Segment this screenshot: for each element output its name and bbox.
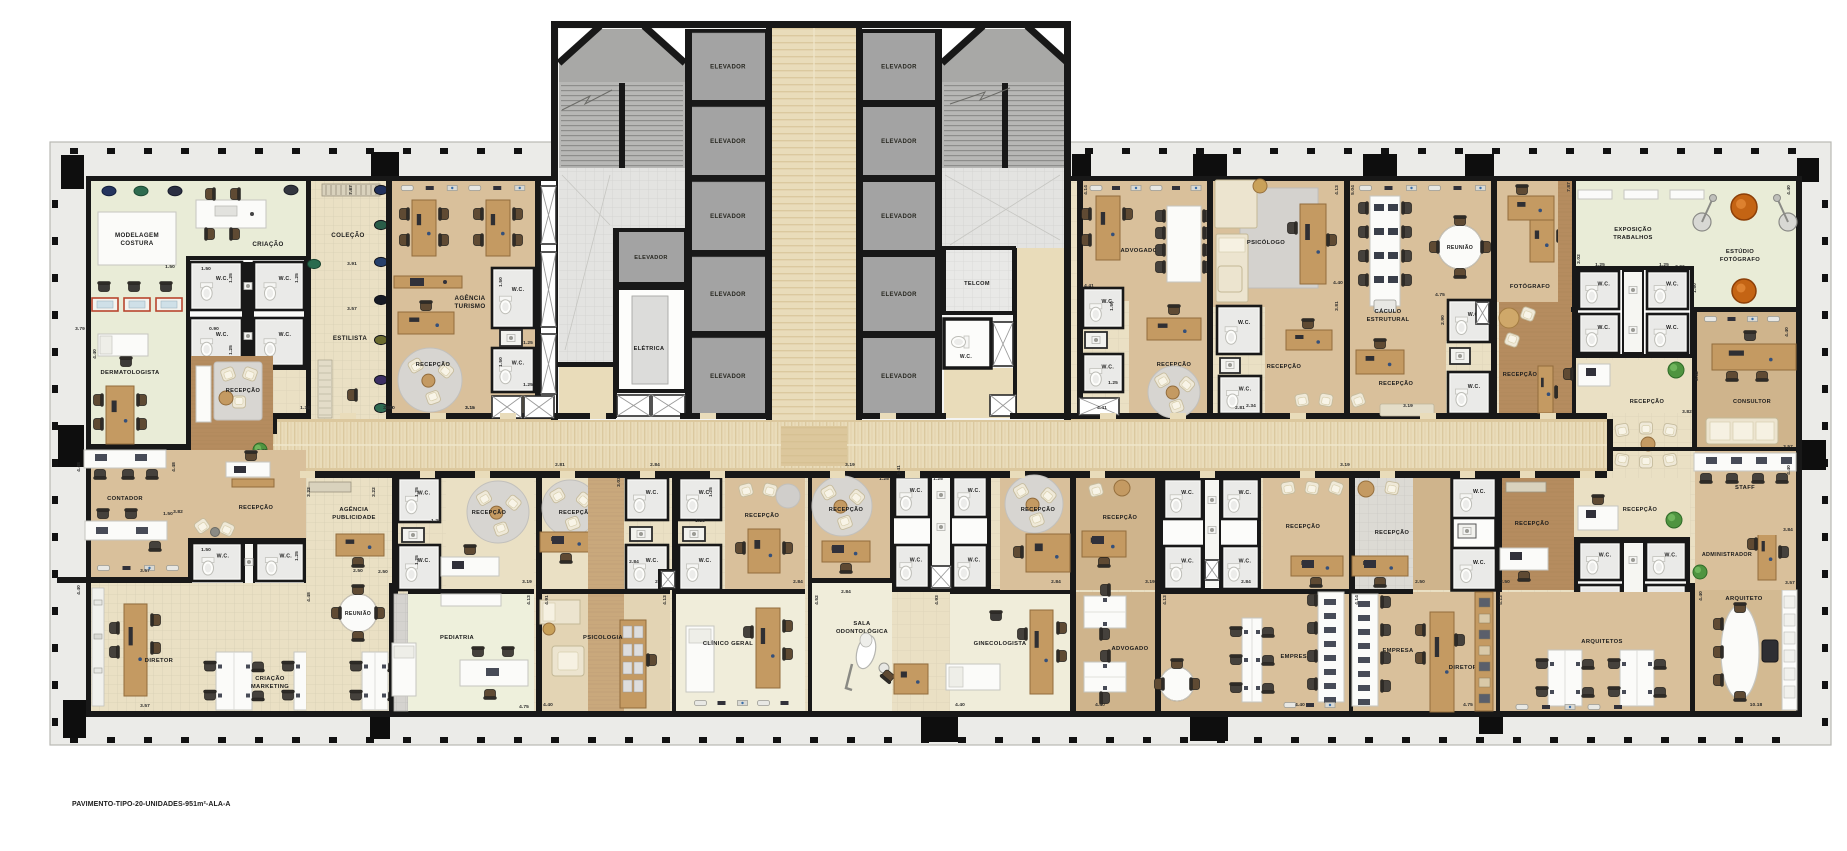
svg-text:1.25: 1.25 — [414, 487, 420, 497]
svg-text:3.19: 3.19 — [1403, 403, 1413, 409]
svg-text:3.57: 3.57 — [140, 568, 150, 574]
svg-text:2.84: 2.84 — [1241, 579, 1251, 585]
svg-text:4.40: 4.40 — [76, 585, 82, 595]
svg-text:2.84: 2.84 — [841, 589, 851, 595]
svg-text:RECEPÇÃO: RECEPÇÃO — [745, 512, 780, 519]
svg-text:4.93: 4.93 — [934, 595, 940, 605]
svg-text:W.C.: W.C. — [968, 557, 981, 563]
svg-text:W.C.: W.C. — [646, 558, 659, 564]
svg-text:2.50: 2.50 — [353, 568, 363, 574]
svg-text:2.50: 2.50 — [378, 569, 388, 575]
svg-text:W.C.: W.C. — [1239, 490, 1252, 496]
svg-text:3.22: 3.22 — [371, 487, 377, 497]
svg-text:1.50: 1.50 — [201, 547, 211, 553]
svg-text:1.50: 1.50 — [201, 266, 211, 272]
svg-text:3.82: 3.82 — [173, 509, 183, 515]
svg-text:2.50: 2.50 — [385, 405, 395, 411]
svg-text:4.14: 4.14 — [1083, 185, 1089, 195]
svg-text:4.13: 4.13 — [662, 595, 668, 605]
svg-text:CONTADOR: CONTADOR — [107, 496, 143, 502]
svg-text:4.40: 4.40 — [1786, 185, 1792, 195]
svg-text:3.22: 3.22 — [306, 487, 312, 497]
svg-text:W.C.: W.C. — [1473, 560, 1486, 566]
svg-text:3.91: 3.91 — [347, 261, 357, 267]
svg-text:RECEPÇÃO: RECEPÇÃO — [472, 509, 507, 516]
svg-text:MARKETING: MARKETING — [251, 684, 289, 690]
svg-text:4.40: 4.40 — [1095, 702, 1105, 708]
svg-text:AGÊNCIA: AGÊNCIA — [339, 505, 369, 513]
svg-text:3.19: 3.19 — [845, 462, 855, 468]
svg-text:W.C.: W.C. — [960, 354, 972, 360]
svg-text:ARQUITETOS: ARQUITETOS — [1581, 639, 1622, 645]
svg-text:W.C.: W.C. — [1181, 558, 1194, 564]
svg-text:1.25: 1.25 — [523, 382, 533, 388]
svg-text:4.13: 4.13 — [1334, 185, 1340, 195]
svg-text:2.81: 2.81 — [555, 462, 565, 468]
svg-text:ELEVADOR: ELEVADOR — [881, 139, 917, 145]
svg-text:RECEPÇÃO: RECEPÇÃO — [829, 506, 864, 513]
svg-text:MODELAGEM: MODELAGEM — [115, 232, 159, 239]
svg-text:ELEVADOR: ELEVADOR — [710, 139, 746, 145]
svg-text:4.40: 4.40 — [1333, 280, 1343, 286]
svg-text:ESTRUTURAL: ESTRUTURAL — [1367, 317, 1410, 323]
svg-text:1.25: 1.25 — [879, 476, 889, 482]
svg-text:DERMATOLOGISTA: DERMATOLOGISTA — [100, 370, 159, 376]
svg-text:10.18: 10.18 — [1750, 702, 1763, 708]
svg-text:W.C.: W.C. — [1597, 325, 1610, 331]
svg-text:4.48: 4.48 — [306, 592, 312, 602]
svg-text:1.25: 1.25 — [294, 551, 300, 561]
svg-text:ADVOGADO: ADVOGADO — [1112, 646, 1149, 652]
svg-text:RECEPÇÃO: RECEPÇÃO — [1379, 380, 1414, 387]
svg-text:CÁCULO: CÁCULO — [1375, 308, 1402, 315]
svg-text:RECEPÇÃO: RECEPÇÃO — [1503, 371, 1538, 378]
svg-text:1.25: 1.25 — [523, 340, 533, 346]
svg-text:ELEVADOR: ELEVADOR — [634, 255, 667, 261]
svg-text:W.C.: W.C. — [279, 332, 292, 338]
svg-text:2.50: 2.50 — [1500, 579, 1510, 585]
svg-text:1.25: 1.25 — [1108, 380, 1118, 386]
svg-text:SALA: SALA — [853, 621, 871, 627]
svg-text:4.52: 4.52 — [814, 595, 820, 605]
svg-text:1.25: 1.25 — [1659, 262, 1669, 268]
svg-text:COSTURA: COSTURA — [120, 240, 153, 247]
svg-text:4.48: 4.48 — [76, 462, 82, 472]
svg-text:3.82: 3.82 — [1682, 409, 1692, 415]
svg-text:TURISMO: TURISMO — [455, 303, 486, 310]
svg-text:W.C.: W.C. — [1597, 281, 1610, 287]
svg-text:W.C.: W.C. — [1468, 384, 1481, 390]
svg-text:COLEÇÃO: COLEÇÃO — [331, 232, 364, 239]
svg-text:4.13: 4.13 — [1162, 595, 1168, 605]
svg-text:3.84: 3.84 — [1783, 527, 1793, 533]
svg-text:TRABALHOS: TRABALHOS — [1613, 235, 1653, 241]
svg-text:5.04: 5.04 — [1350, 185, 1356, 195]
svg-text:W.C.: W.C. — [910, 488, 923, 494]
svg-text:ELEVADOR: ELEVADOR — [881, 374, 917, 380]
svg-text:4.48: 4.48 — [171, 462, 177, 472]
svg-text:RECEPÇÃO: RECEPÇÃO — [416, 361, 451, 368]
svg-text:RECEPÇÃO: RECEPÇÃO — [1375, 529, 1410, 536]
svg-text:CLÍNICO GERAL: CLÍNICO GERAL — [703, 639, 753, 647]
svg-text:3.81: 3.81 — [1334, 301, 1340, 311]
svg-text:W.C.: W.C. — [910, 557, 923, 563]
svg-text:W.C.: W.C. — [1664, 552, 1677, 558]
svg-text:STAFF: STAFF — [1735, 485, 1755, 491]
svg-text:1.50: 1.50 — [498, 357, 504, 367]
svg-text:ADMINISTRADOR: ADMINISTRADOR — [1702, 552, 1752, 558]
svg-text:ADVOGADO: ADVOGADO — [1121, 248, 1158, 254]
svg-text:1.50: 1.50 — [165, 264, 175, 270]
svg-text:4.91: 4.91 — [544, 595, 550, 605]
svg-text:RECEPÇÃO: RECEPÇÃO — [1103, 514, 1138, 521]
svg-text:DIRETOR: DIRETOR — [145, 658, 174, 664]
svg-text:ELEVADOR: ELEVADOR — [881, 65, 917, 71]
svg-text:4.41: 4.41 — [1084, 283, 1094, 289]
svg-text:2.84: 2.84 — [793, 579, 803, 585]
svg-text:W.C.: W.C. — [1239, 558, 1252, 564]
svg-text:4.40: 4.40 — [1786, 465, 1792, 475]
svg-text:3.57: 3.57 — [140, 703, 150, 709]
svg-text:GINECOLOGISTA: GINECOLOGISTA — [974, 641, 1027, 647]
svg-text:1.50: 1.50 — [498, 277, 504, 287]
svg-text:W.C.: W.C. — [1473, 489, 1486, 495]
svg-text:4.13: 4.13 — [1498, 595, 1504, 605]
svg-text:1.25: 1.25 — [294, 273, 300, 283]
svg-text:4.40: 4.40 — [1784, 327, 1790, 337]
svg-text:W.C.: W.C. — [1666, 325, 1679, 331]
svg-text:W.C.: W.C. — [512, 361, 525, 367]
svg-text:ELEVADOR: ELEVADOR — [710, 214, 746, 220]
svg-text:1.25: 1.25 — [228, 345, 234, 355]
svg-text:W.C.: W.C. — [279, 553, 292, 559]
svg-text:W.C.: W.C. — [512, 287, 525, 293]
svg-text:ELEVADOR: ELEVADOR — [710, 292, 746, 298]
svg-text:4.75: 4.75 — [519, 704, 529, 710]
svg-text:CRIAÇÃO: CRIAÇÃO — [252, 241, 283, 248]
svg-text:7.87: 7.87 — [348, 185, 354, 195]
svg-text:3.19: 3.19 — [522, 579, 532, 585]
svg-text:4.40: 4.40 — [955, 702, 965, 708]
svg-text:RECEPÇÃO: RECEPÇÃO — [1267, 363, 1302, 370]
svg-text:1.25: 1.25 — [431, 518, 441, 524]
svg-text:1.25: 1.25 — [695, 518, 705, 524]
svg-text:3.02: 3.02 — [1694, 371, 1700, 381]
svg-text:W.C.: W.C. — [1666, 281, 1679, 287]
svg-text:W.C.: W.C. — [1101, 364, 1114, 370]
svg-text:3.02: 3.02 — [1576, 254, 1582, 264]
svg-text:AGÊNCIA: AGÊNCIA — [455, 294, 486, 302]
svg-text:W.C.: W.C. — [1599, 552, 1612, 558]
svg-text:ODONTOLÓGICA: ODONTOLÓGICA — [836, 627, 889, 635]
svg-text:ARQUITETO: ARQUITETO — [1725, 596, 1762, 602]
svg-text:RECEPÇÃO: RECEPÇÃO — [1630, 398, 1665, 405]
svg-text:REUNIÃO: REUNIÃO — [1447, 244, 1473, 251]
svg-text:2.84: 2.84 — [650, 462, 660, 468]
svg-text:CRIAÇÃO: CRIAÇÃO — [255, 675, 285, 682]
svg-text:3.41: 3.41 — [896, 465, 902, 475]
svg-text:2.84: 2.84 — [1051, 579, 1061, 585]
svg-text:4.40: 4.40 — [1698, 591, 1704, 601]
svg-text:ELEVADOR: ELEVADOR — [881, 214, 917, 220]
svg-text:PAVIMENTO-TIPO-20-UNIDADES-951: PAVIMENTO-TIPO-20-UNIDADES-951m²-ALA-A — [72, 801, 231, 808]
svg-text:4.75: 4.75 — [1463, 702, 1473, 708]
svg-text:ELÉTRICA: ELÉTRICA — [634, 344, 665, 352]
svg-text:W.C.: W.C. — [1238, 320, 1251, 326]
svg-text:TELCOM: TELCOM — [964, 281, 990, 287]
svg-text:W.C.: W.C. — [1181, 490, 1194, 496]
svg-text:4.75: 4.75 — [1435, 292, 1445, 298]
svg-text:7.87: 7.87 — [1566, 182, 1572, 192]
svg-text:3.19: 3.19 — [1340, 462, 1350, 468]
svg-text:PSICÓLOGO: PSICÓLOGO — [1247, 238, 1285, 246]
svg-text:ELEVADOR: ELEVADOR — [710, 374, 746, 380]
svg-text:RECEPÇÃO: RECEPÇÃO — [1021, 506, 1056, 513]
svg-text:1.25: 1.25 — [228, 273, 234, 283]
svg-text:4.40: 4.40 — [1295, 702, 1305, 708]
svg-text:ELEVADOR: ELEVADOR — [710, 65, 746, 71]
svg-text:W.C.: W.C. — [216, 276, 229, 282]
svg-text:REUNIÃO: REUNIÃO — [345, 610, 371, 617]
svg-text:PUBLICIDADE: PUBLICIDADE — [332, 515, 375, 521]
svg-text:RECEPÇÃO: RECEPÇÃO — [1286, 523, 1321, 530]
svg-text:W.C.: W.C. — [216, 332, 229, 338]
svg-text:W.C.: W.C. — [968, 488, 981, 494]
svg-text:4.13: 4.13 — [526, 595, 532, 605]
svg-text:RECEPÇÃO: RECEPÇÃO — [1515, 520, 1550, 527]
svg-text:1.34: 1.34 — [300, 405, 310, 411]
svg-text:3.57: 3.57 — [1785, 580, 1795, 586]
svg-text:4.41: 4.41 — [1097, 405, 1107, 411]
svg-text:0.90: 0.90 — [209, 326, 219, 332]
svg-text:1.25: 1.25 — [708, 487, 714, 497]
svg-text:ESTILISTA: ESTILISTA — [333, 335, 367, 342]
svg-text:1.25: 1.25 — [1595, 262, 1605, 268]
svg-text:2.34: 2.34 — [1246, 403, 1256, 409]
svg-text:2.90: 2.90 — [1440, 315, 1446, 325]
svg-text:2.81: 2.81 — [1235, 405, 1245, 411]
svg-text:1.50: 1.50 — [1109, 301, 1115, 311]
svg-text:1.25: 1.25 — [933, 476, 943, 482]
svg-text:3.79: 3.79 — [75, 326, 85, 332]
svg-text:ESTÚDIO: ESTÚDIO — [1726, 248, 1754, 255]
svg-text:3.15: 3.15 — [465, 405, 475, 411]
svg-text:PSICOLOGIA: PSICOLOGIA — [583, 635, 623, 641]
svg-text:RECEPÇÃO: RECEPÇÃO — [226, 387, 261, 394]
svg-text:1.50: 1.50 — [1692, 283, 1698, 293]
svg-text:3.03: 3.03 — [616, 477, 622, 487]
svg-text:ELEVADOR: ELEVADOR — [881, 292, 917, 298]
svg-text:FOTÓGRAFO: FOTÓGRAFO — [1510, 282, 1550, 290]
svg-text:2.50: 2.50 — [1415, 579, 1425, 585]
svg-text:1.50: 1.50 — [163, 511, 173, 517]
svg-text:3.19: 3.19 — [1145, 579, 1155, 585]
svg-text:DIRETOR: DIRETOR — [1449, 665, 1478, 671]
svg-text:4.40: 4.40 — [92, 349, 98, 359]
svg-text:3.57: 3.57 — [347, 306, 357, 312]
svg-text:2.84: 2.84 — [629, 559, 639, 565]
svg-text:PEDIATRIA: PEDIATRIA — [440, 635, 474, 641]
svg-text:W.C.: W.C. — [699, 558, 712, 564]
svg-text:4.40: 4.40 — [543, 702, 553, 708]
svg-text:4.14: 4.14 — [1354, 595, 1360, 605]
svg-text:1.25: 1.25 — [414, 555, 420, 565]
svg-text:W.C.: W.C. — [279, 276, 292, 282]
svg-text:W.C.: W.C. — [217, 553, 230, 559]
svg-text:RECEPÇÃO: RECEPÇÃO — [239, 504, 274, 511]
svg-text:CONSULTOR: CONSULTOR — [1733, 399, 1771, 405]
svg-text:RECEPÇÃO: RECEPÇÃO — [1623, 506, 1658, 513]
svg-text:EXPOSIÇÃO: EXPOSIÇÃO — [1614, 226, 1652, 233]
svg-text:FOTÓGRAFO: FOTÓGRAFO — [1720, 255, 1760, 263]
svg-text:W.C.: W.C. — [1239, 386, 1252, 392]
svg-text:W.C.: W.C. — [646, 490, 659, 496]
